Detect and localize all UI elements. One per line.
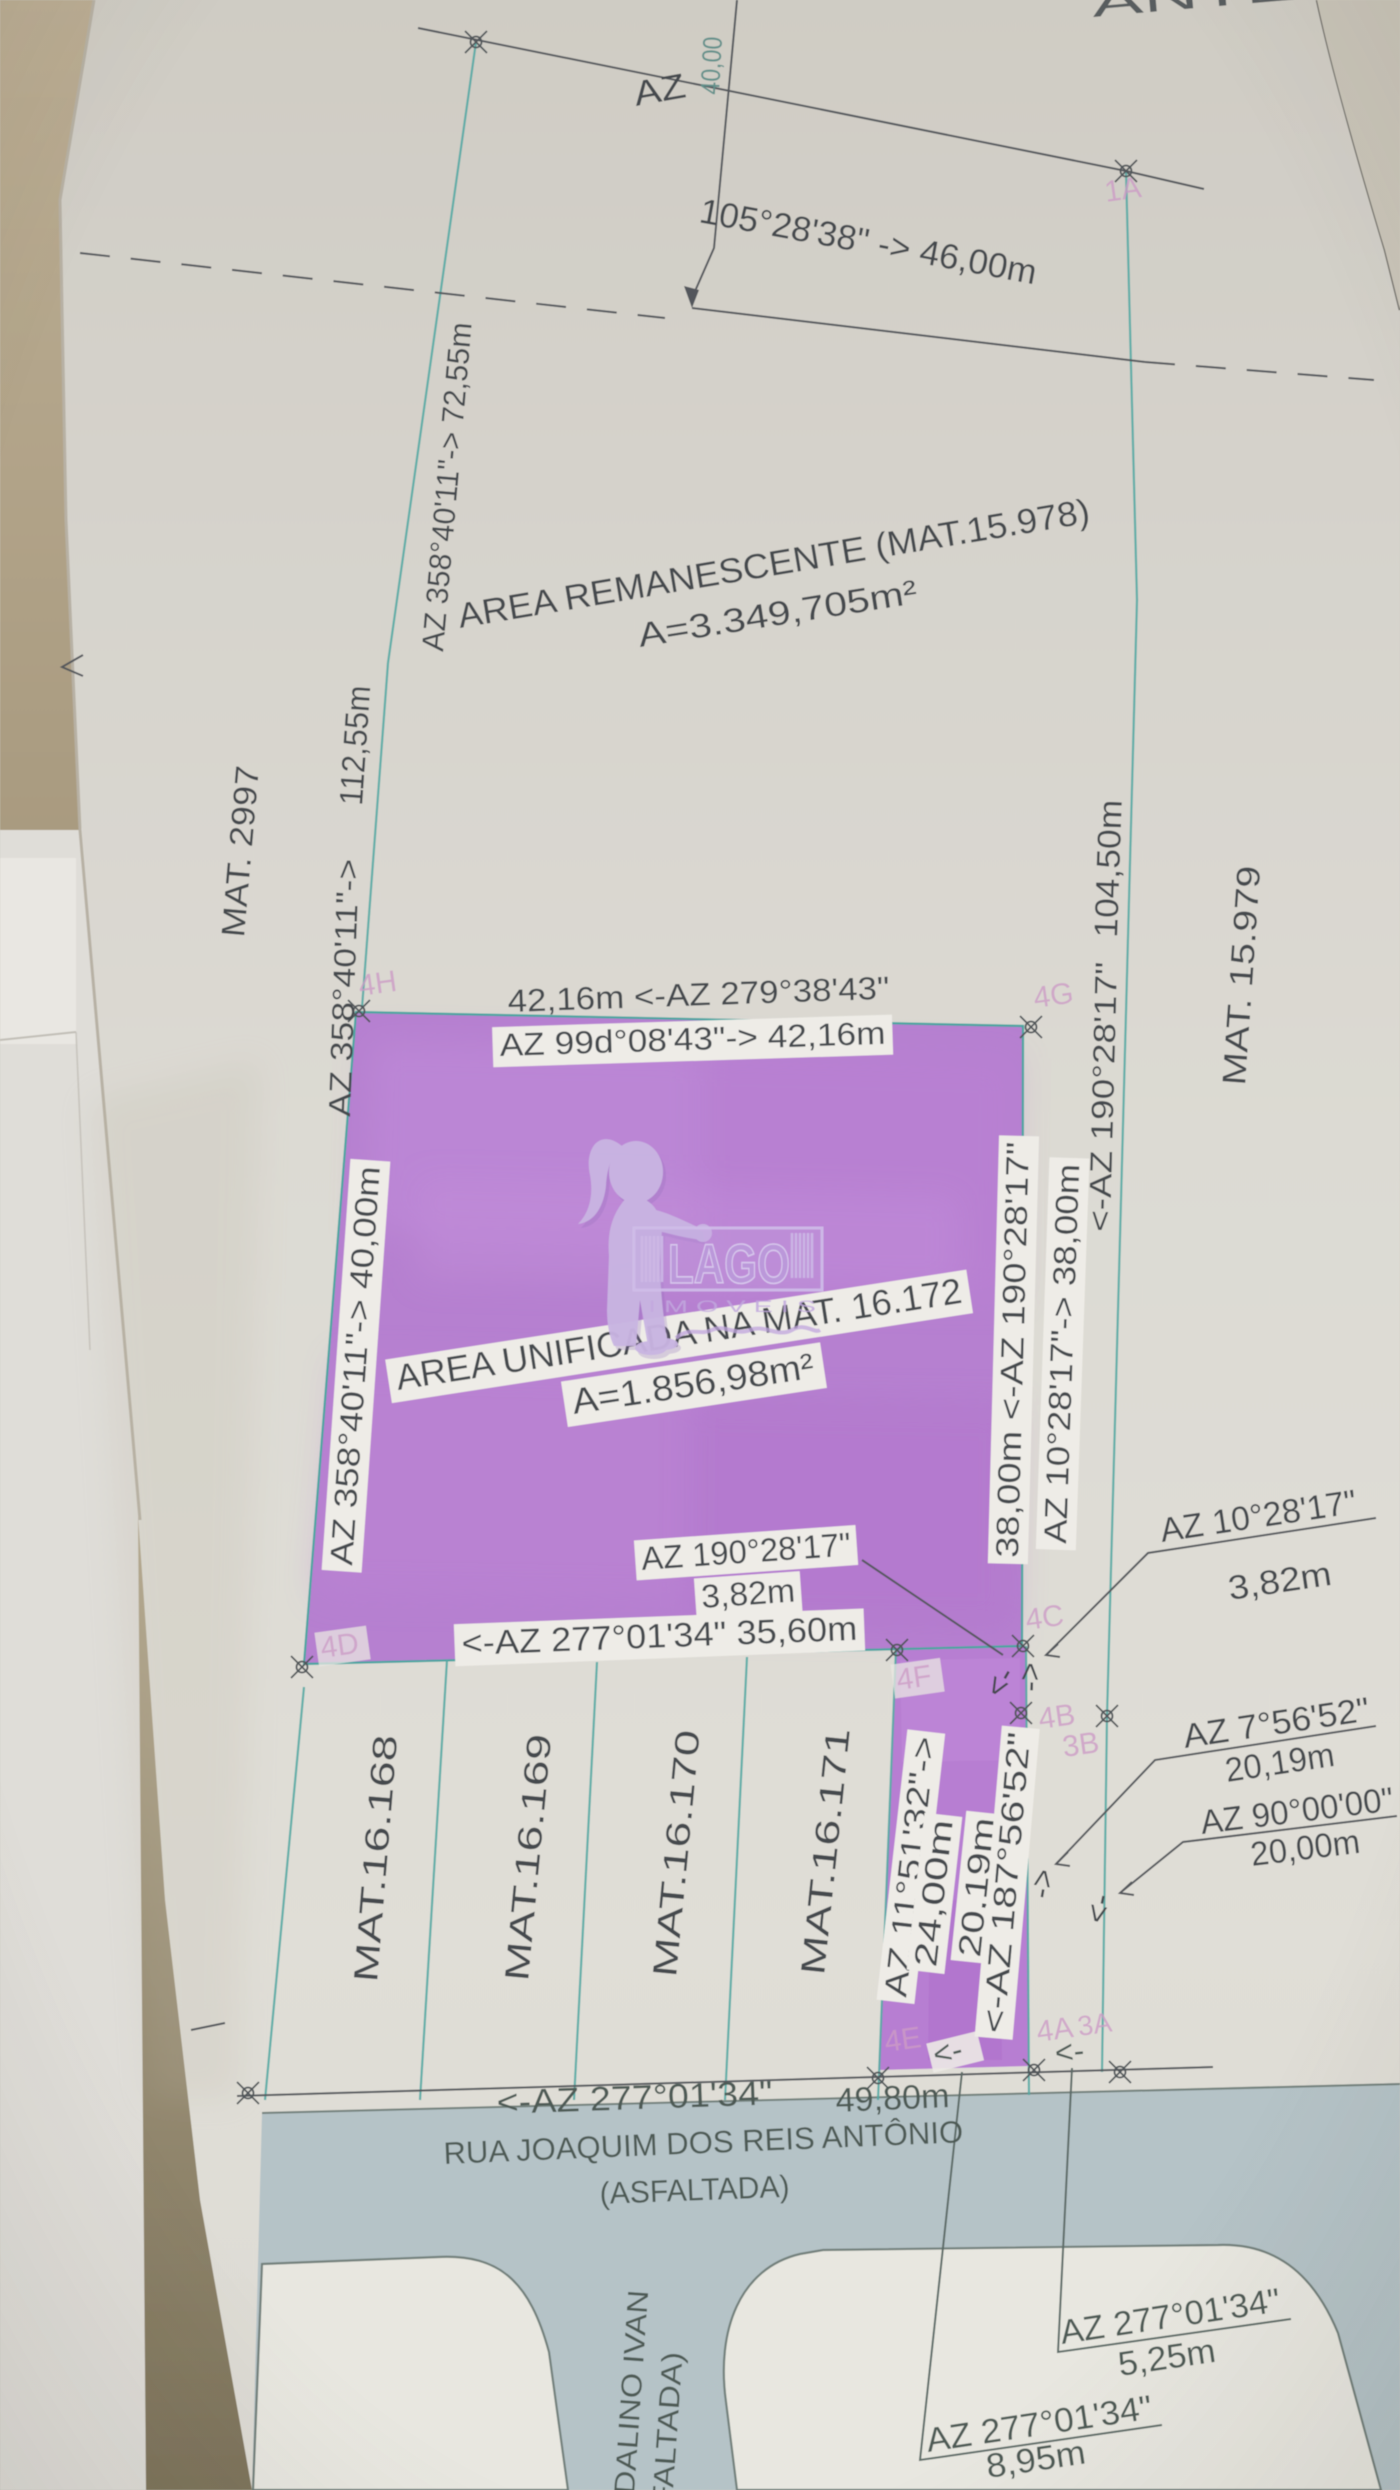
svg-text:40,00: 40,00 — [695, 36, 728, 95]
svg-text:4C: 4C — [1023, 1599, 1066, 1637]
svg-text:3,82m: 3,82m — [700, 1572, 796, 1615]
svg-text:4A: 4A — [1034, 2011, 1075, 2049]
svg-text:4F: 4F — [894, 1659, 933, 1697]
svg-text:->: -> — [1021, 1866, 1062, 1901]
svg-text:(ASFALTADA): (ASFALTADA) — [599, 2169, 790, 2211]
svg-text:4H: 4H — [356, 965, 399, 1003]
svg-text:LAGO: LAGO — [668, 1232, 790, 1295]
svg-text:4E: 4E — [882, 2021, 923, 2059]
svg-text:4G: 4G — [1031, 977, 1075, 1015]
svg-text:3A: 3A — [1076, 2006, 1115, 2042]
svg-text:1A: 1A — [1102, 171, 1143, 209]
svg-text:49,80m: 49,80m — [835, 2077, 951, 2120]
svg-text:->: -> — [1011, 1662, 1048, 1693]
svg-text:<-AZ 190°28'17": <-AZ 190°28'17" — [1082, 961, 1124, 1232]
svg-text:104,50m: 104,50m — [1087, 799, 1129, 938]
svg-text:3B: 3B — [1060, 1726, 1101, 1764]
svg-text:I M O V E I S: I M O V E I S — [648, 1297, 816, 1316]
svg-text:4D: 4D — [318, 1627, 361, 1665]
